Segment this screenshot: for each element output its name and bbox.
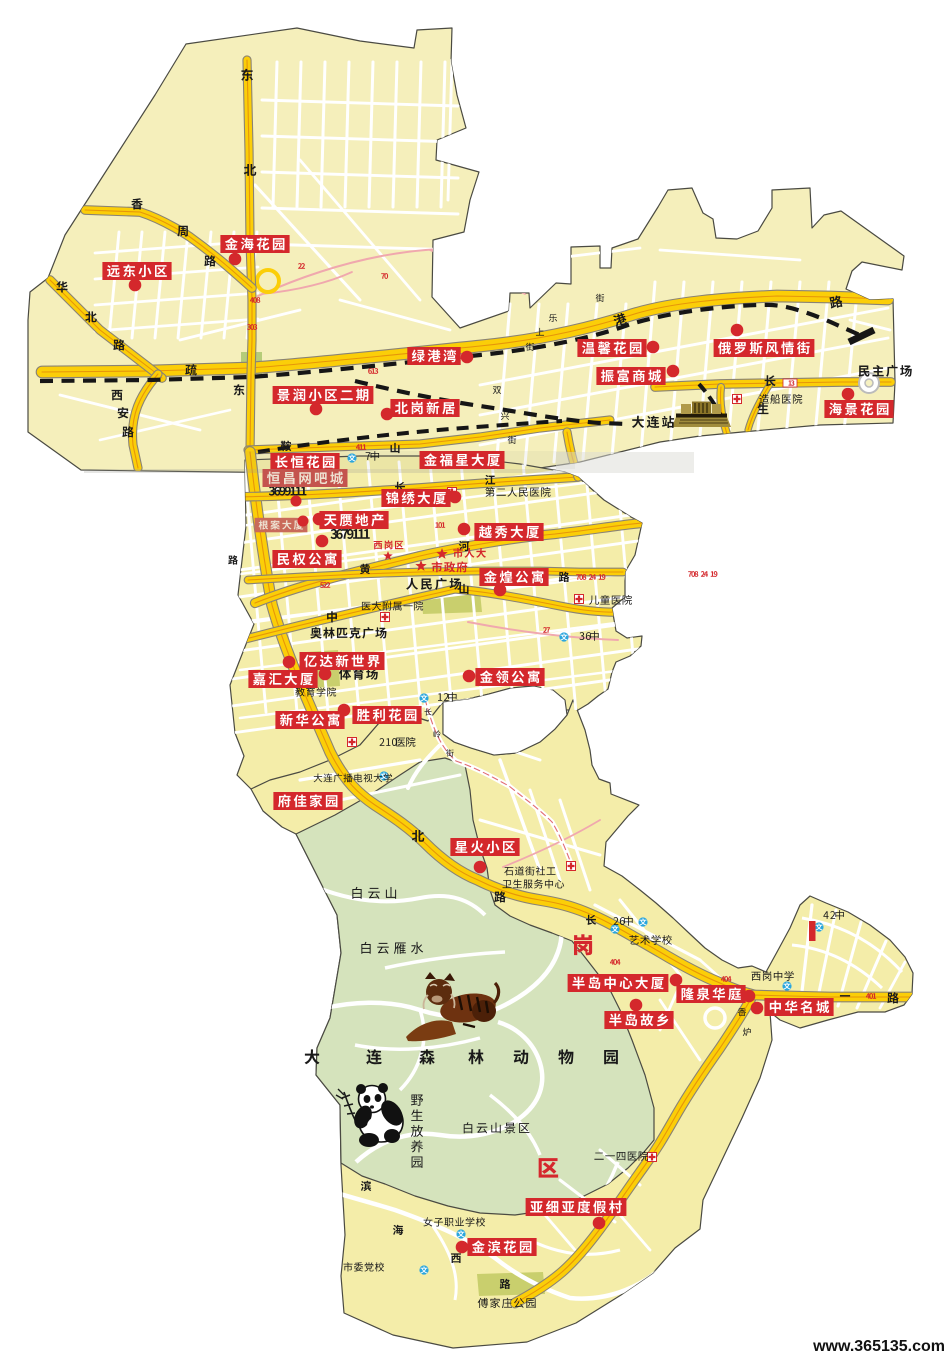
svg-text:www.365135.com: www.365135.com bbox=[812, 1338, 945, 1355]
